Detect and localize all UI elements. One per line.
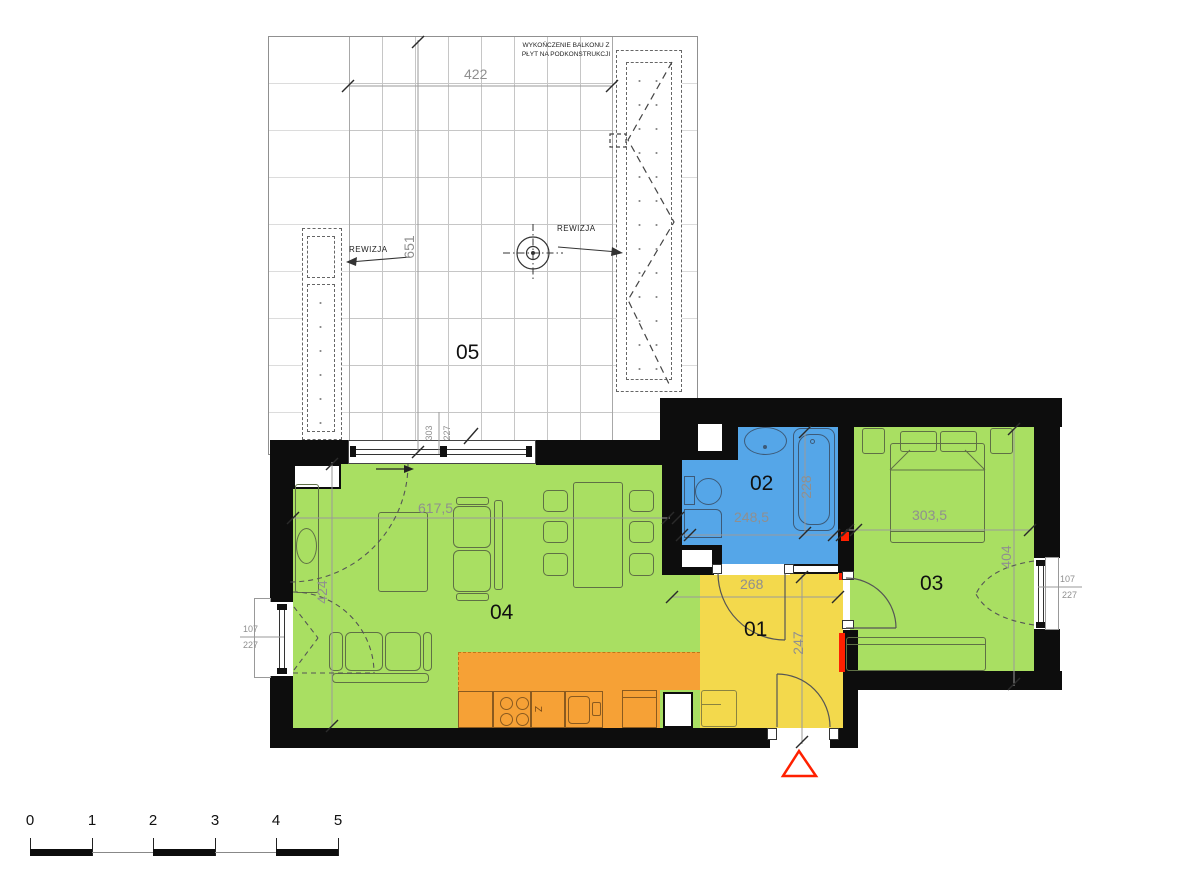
toilet-bowl (695, 478, 722, 505)
room-label-bedroom: 03 (920, 572, 943, 596)
floor-plan-canvas: WYKOŃCZENIE BALKONU Z PŁYT NA PODKONSTRU… (0, 0, 1200, 877)
planter-left-inner-top (307, 236, 335, 278)
bedroom-door-jamb-bottom (842, 620, 854, 629)
entrance-jamb-right (829, 728, 839, 740)
washing-machine (684, 509, 722, 538)
dim-balcony-depth: 651 (399, 223, 419, 271)
dining-chair-r1 (629, 490, 654, 512)
room-label-bathroom: 02 (750, 472, 773, 496)
scale-tick (338, 838, 339, 856)
scale-num-4: 4 (268, 812, 284, 829)
bathtub-drain (810, 439, 815, 444)
scale-segment-2 (153, 849, 215, 856)
coffee-table (378, 512, 428, 592)
sofa-arm-right (423, 632, 432, 671)
planter-left-inner-bottom (307, 284, 335, 432)
dim-living-window-h: 227 (243, 640, 258, 650)
dim-living-depth: 424 (312, 568, 332, 616)
dim-bathroom-depth: 228 (796, 463, 816, 511)
dining-chair-r2 (629, 521, 654, 543)
dining-table (573, 482, 623, 588)
dim-balcony-door-h: 227 (437, 409, 457, 457)
room-label-living: 04 (490, 601, 513, 625)
room-label-hall: 01 (744, 618, 767, 642)
dim-bedroom-window-h: 227 (1062, 590, 1077, 600)
scale-tick (92, 838, 93, 856)
scale-num-1: 1 (84, 812, 100, 829)
scale-segment-1 (30, 849, 92, 856)
wall-living-bath (662, 460, 682, 548)
kitchen-appliance-mark: Z (528, 697, 548, 721)
armchair-seat-2 (453, 550, 491, 592)
washbasin (744, 427, 787, 455)
nightstand-left (862, 428, 885, 454)
entrance-triangle (783, 751, 816, 776)
armchair-front (456, 593, 489, 601)
scale-tick (215, 838, 216, 856)
sofa-cushion-1 (345, 632, 383, 671)
living-window-cap-top (277, 604, 287, 610)
wall-bath-bedroom (838, 427, 854, 573)
bath-door-jamb-left (712, 564, 722, 574)
dim-living-width: 617,5 (418, 500, 453, 516)
sofa-arm-left (329, 632, 343, 671)
red-marker-corner (841, 532, 849, 541)
sofa-base (332, 673, 429, 683)
wall-right-upper (1034, 427, 1060, 558)
wall-bottom-left (270, 728, 770, 748)
living-window-cap-bottom (277, 668, 287, 674)
fridge (622, 690, 657, 728)
washbasin-drain (763, 445, 767, 449)
dim-living-window-w: 107 (243, 624, 258, 634)
toilet-tank (684, 476, 695, 505)
planter-right-inner (626, 62, 672, 380)
balcony-window-cap-left (350, 446, 356, 457)
balcony-window-cap-right (526, 446, 532, 457)
bedroom-door-jamb-top (842, 571, 854, 580)
dining-chair-l2 (543, 521, 568, 543)
armchair-side (494, 500, 503, 590)
tv-set (296, 528, 317, 564)
hall-wardrobe (701, 690, 737, 727)
bath-door-jamb-right (784, 564, 794, 574)
dim-bedroom-depth: 404 (996, 533, 1016, 581)
dim-bedroom-window-w: 107 (1060, 574, 1075, 584)
shaft-bath-bottom (680, 548, 714, 569)
bath-door-opening (714, 564, 790, 575)
dim-hall-depth: 247 (788, 619, 808, 667)
shaft-bath-top (696, 422, 724, 453)
scale-num-0: 0 (22, 812, 38, 829)
wall-top-left (270, 440, 350, 464)
dim-bathroom-width: 248,5 (734, 509, 769, 525)
living-window-glazing (279, 607, 285, 671)
entrance-jamb-left (767, 728, 777, 740)
bedroom-wardrobe (846, 637, 986, 671)
burner-1 (500, 697, 513, 710)
living-window-sill (254, 598, 271, 678)
armchair-back (456, 497, 489, 505)
balcony-tile-grid (349, 37, 613, 454)
bed-foot-line (890, 531, 985, 532)
dining-chair-l1 (543, 490, 568, 512)
wall-left (270, 440, 293, 748)
dining-chair-l3 (543, 553, 568, 576)
revision-label-left: REWIZJA (349, 245, 388, 254)
scale-num-2: 2 (145, 812, 161, 829)
balcony-finish-note-line1: WYKOŃCZENIE BALKONU Z (516, 42, 616, 49)
balcony-finish-note-line2: PŁYT NA PODKONSTRUKCJI (516, 51, 616, 58)
scale-num-3: 3 (207, 812, 223, 829)
bath-bottom-partition (787, 564, 838, 574)
dim-balcony-door-w: 303 (419, 409, 439, 457)
dining-chair-r3 (629, 553, 654, 576)
red-marker-door-bottom (839, 633, 845, 672)
revision-label-right: REWIZJA (557, 224, 596, 233)
scale-num-5: 5 (330, 812, 346, 829)
dim-balcony-width: 422 (464, 66, 487, 82)
shaft-kitchen (663, 692, 693, 728)
dim-hall-width: 268 (740, 576, 763, 592)
sink-tap (592, 702, 601, 716)
bedroom-wardrobe-rail (846, 644, 986, 645)
fridge-door-line (622, 697, 657, 698)
sink-basin (568, 696, 590, 724)
hall-wardrobe-shelf (701, 704, 721, 705)
nightstand-right (990, 428, 1013, 454)
dim-bedroom-width: 303,5 (912, 507, 947, 523)
kitchen-zone (458, 652, 700, 690)
bedroom-window-sill (1045, 557, 1059, 630)
wall-bedroom-bottom (843, 671, 1062, 690)
counter-cell (458, 691, 493, 728)
room-label-balcony: 05 (456, 341, 479, 365)
burner-3 (500, 713, 513, 726)
scale-segment-3 (276, 849, 338, 856)
double-bed (890, 443, 985, 543)
sofa-cushion-2 (385, 632, 421, 671)
armchair-seat-1 (453, 506, 491, 548)
bedroom-window-glazing (1038, 563, 1044, 625)
